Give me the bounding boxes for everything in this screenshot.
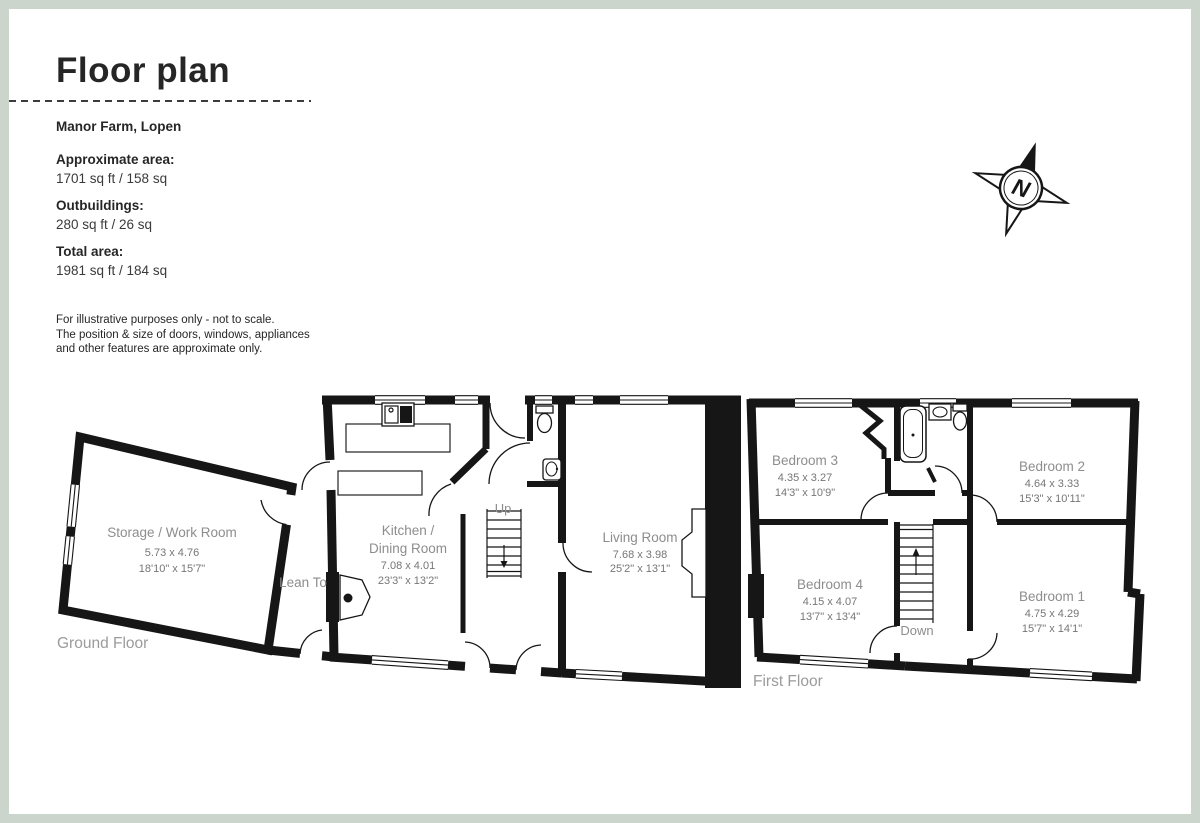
disclaimer-line: and other features are approximate only.	[56, 342, 310, 357]
page-title: Floor plan	[56, 51, 230, 91]
storage-room-metric: 5.73 x 4.76	[145, 547, 199, 559]
living-room-imperial: 25'2" x 13'1"	[610, 563, 670, 575]
first-floor-plan: Bedroom 3 4.35 x 3.27 14'3" x 10'9" Bedr…	[747, 397, 1144, 690]
floor-plans: Storage / Work Room 5.73 x 4.76 18'10" x…	[40, 386, 1160, 706]
bedroom4-label: Bedroom 4	[797, 577, 864, 592]
kitchen-imperial: 23'3" x 13'2"	[378, 575, 438, 587]
dashed-divider	[9, 100, 311, 102]
compass-rose: N	[965, 132, 1077, 244]
ground-floor-plan: Storage / Work Room 5.73 x 4.76 18'10" x…	[57, 396, 741, 688]
bathtub-icon	[900, 406, 926, 462]
living-room-label: Living Room	[602, 530, 677, 545]
total-area-value: 1981 sq ft / 184 sq	[56, 263, 167, 278]
disclaimer-line: For illustrative purposes only - not to …	[56, 313, 310, 328]
ground-floor-label: Ground Floor	[57, 635, 148, 652]
bedroom3-metric: 4.35 x 3.27	[778, 472, 832, 484]
kitchen-label-line1: Kitchen /	[382, 523, 435, 538]
property-name: Manor Farm, Lopen	[56, 119, 181, 134]
first-floor-label: First Floor	[753, 673, 823, 690]
bedroom4-imperial: 13'7" x 13'4"	[800, 611, 860, 623]
bedroom1-imperial: 15'7" x 14'1"	[1022, 623, 1082, 635]
disclaimer-line: The position & size of doors, windows, a…	[56, 328, 310, 343]
approximate-area-label: Approximate area:	[56, 152, 175, 167]
approximate-area-value: 1701 sq ft / 158 sq	[56, 171, 167, 186]
stairs-down-label: Down	[900, 623, 933, 638]
storage-room-label: Storage / Work Room	[107, 525, 237, 540]
chimney-breast	[748, 574, 764, 618]
storage-room-walls	[63, 437, 292, 650]
bedroom2-imperial: 15'3" x 10'11"	[1019, 493, 1085, 505]
kitchen-label-line2: Dining Room	[369, 541, 447, 556]
storage-window	[63, 536, 74, 565]
total-area-label: Total area:	[56, 244, 123, 259]
outbuildings-value: 280 sq ft / 26 sq	[56, 217, 152, 232]
wc-sink-icon	[543, 459, 561, 480]
disclaimer-text: For illustrative purposes only - not to …	[56, 313, 310, 357]
floorplan-page: Floor plan Manor Farm, Lopen Approximate…	[0, 0, 1200, 823]
kitchen-sink-icon	[382, 403, 414, 426]
kitchen-metric: 7.08 x 4.01	[381, 560, 435, 572]
bedroom1-metric: 4.75 x 4.29	[1025, 608, 1079, 620]
bedroom3-imperial: 14'3" x 10'9"	[775, 487, 835, 499]
ground-top-windows	[375, 396, 668, 405]
lean-to-label: Lean To	[279, 575, 327, 590]
outbuildings-label: Outbuildings:	[56, 198, 144, 213]
bedroom2-metric: 4.64 x 3.33	[1025, 478, 1079, 490]
stairs-up-label: Up	[495, 501, 512, 516]
bedroom1-label: Bedroom 1	[1019, 589, 1085, 604]
living-room-metric: 7.68 x 3.98	[613, 549, 667, 561]
bedroom2-label: Bedroom 2	[1019, 459, 1085, 474]
toilet-icon	[536, 406, 553, 433]
bath-toilet-icon	[953, 404, 967, 430]
bath-sink-icon	[929, 404, 951, 420]
storage-room-imperial: 18'10" x 15'7"	[139, 563, 206, 575]
bedroom4-metric: 4.15 x 4.07	[803, 596, 857, 608]
bedroom3-label: Bedroom 3	[772, 453, 838, 468]
